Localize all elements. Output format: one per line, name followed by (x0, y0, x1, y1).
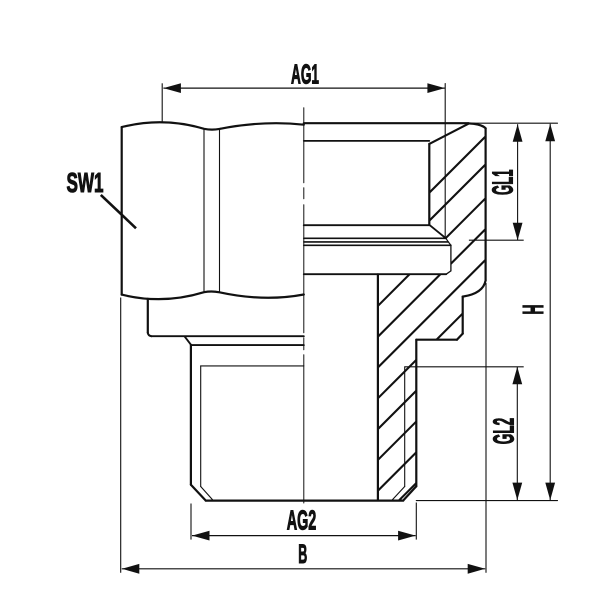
svg-text:GL2: GL2 (488, 418, 520, 445)
svg-text:B: B (298, 539, 307, 569)
svg-text:AG1: AG1 (291, 59, 319, 90)
svg-text:GL1: GL1 (488, 169, 520, 195)
svg-text:SW1: SW1 (67, 167, 104, 198)
svg-text:H: H (518, 305, 550, 315)
svg-text:AG2: AG2 (287, 504, 317, 536)
